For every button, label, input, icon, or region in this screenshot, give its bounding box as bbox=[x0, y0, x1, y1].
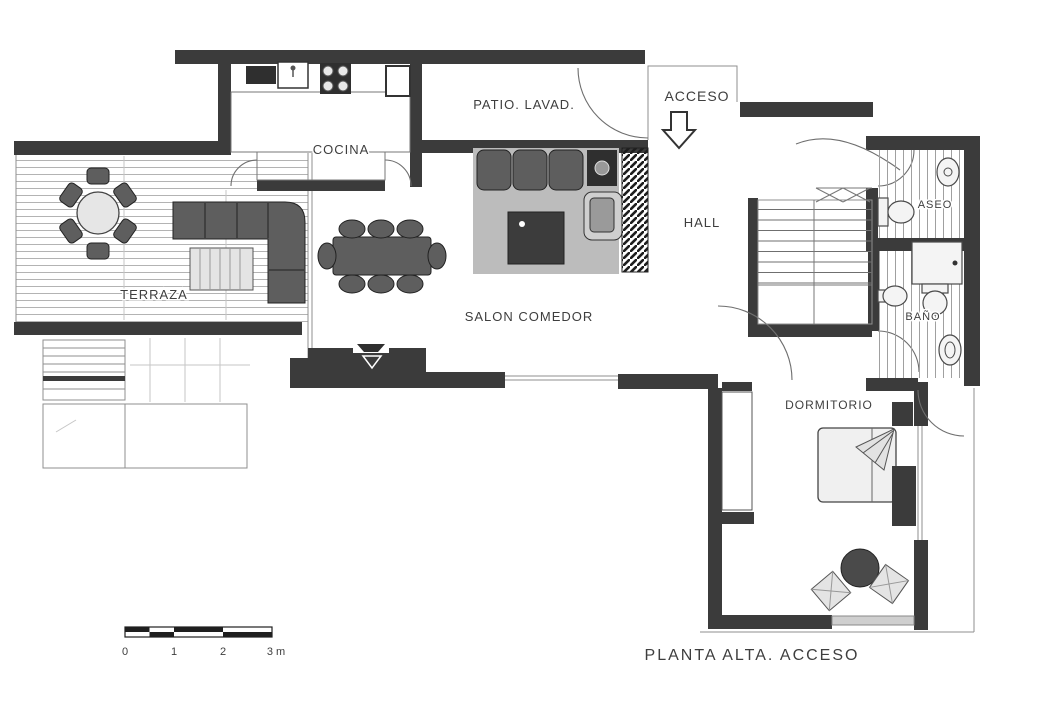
scale-tick-2: 2 bbox=[220, 646, 226, 658]
room-label-bano: BAÑO bbox=[905, 310, 940, 323]
armchair bbox=[584, 192, 622, 240]
coffee-table bbox=[508, 212, 564, 264]
shower-icon bbox=[912, 242, 962, 284]
room-label-cocina: COCINA bbox=[313, 142, 370, 157]
room-label-dormitorio: DORMITORIO bbox=[785, 398, 873, 412]
room-label-salon: SALON COMEDOR bbox=[465, 309, 594, 324]
floor-plan: TERRAZA COCINA PATIO. LAVAD. ACCESO HALL… bbox=[0, 0, 1048, 701]
sink-icon bbox=[278, 62, 308, 88]
washbasin2-icon bbox=[939, 335, 961, 365]
bathrooms bbox=[878, 150, 964, 378]
fridge-icon bbox=[386, 66, 410, 96]
scale-tick-0: 0 bbox=[122, 646, 128, 658]
room-label-acceso: ACCESO bbox=[664, 88, 729, 104]
wardrobe bbox=[892, 466, 916, 526]
scale-tick-3: 3 m bbox=[267, 646, 285, 658]
stove-icon bbox=[320, 63, 351, 94]
room-label-hall: HALL bbox=[684, 215, 721, 230]
scale-tick-1: 1 bbox=[171, 646, 177, 658]
shelf-unit bbox=[622, 148, 648, 272]
wardrobe bbox=[892, 402, 913, 426]
plan-title: PLANTA ALTA. ACCESO bbox=[645, 647, 860, 664]
room-label-terraza: TERRAZA bbox=[120, 287, 188, 302]
floor-plan-page: TERRAZA COCINA PATIO. LAVAD. ACCESO HALL… bbox=[0, 0, 1048, 701]
sofa bbox=[477, 150, 583, 190]
terrace-side-table bbox=[190, 248, 253, 290]
room-label-aseo: ASEO bbox=[918, 199, 953, 211]
kitchen-cabinet bbox=[246, 66, 276, 84]
side-table bbox=[587, 150, 617, 186]
bed bbox=[818, 428, 896, 502]
room-label-patio: PATIO. LAVAD. bbox=[473, 97, 575, 112]
washbasin-icon bbox=[937, 158, 959, 186]
